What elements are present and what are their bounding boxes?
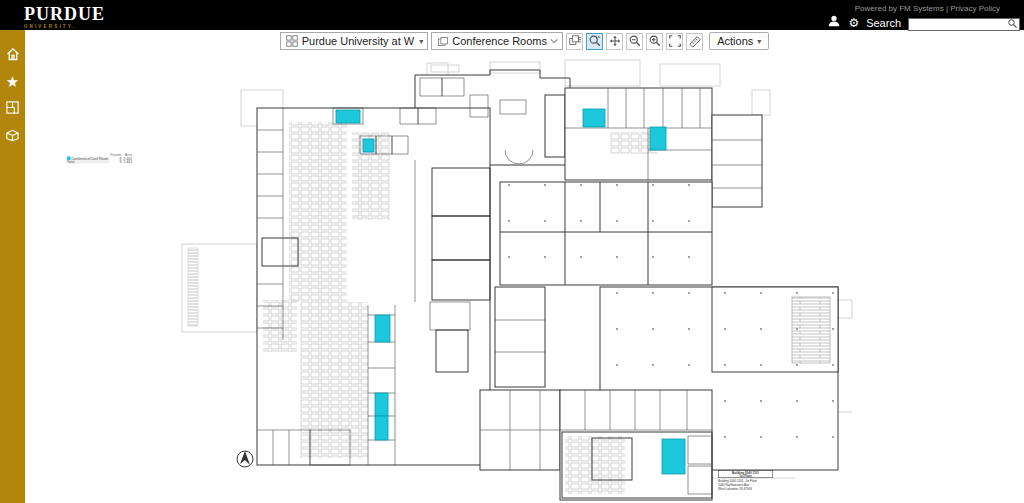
zoom-extents-button[interactable] — [666, 33, 683, 50]
left-sidebar: ★ — [0, 30, 25, 503]
pan-icon — [608, 34, 622, 48]
view-selector[interactable]: Conference Rooms — [431, 32, 563, 50]
view-selector-value: Conference Rooms — [452, 35, 547, 47]
top-bar: PURDUE UNIVERSITY. Powered by FM Systems… — [0, 0, 1024, 30]
campus-grid-icon — [285, 34, 299, 48]
conference-room-highlight-1[interactable] — [336, 110, 360, 123]
floorplan-icon — [5, 100, 20, 119]
conference-room-highlight-7[interactable] — [375, 416, 388, 440]
floorplan-drawing — [0, 0, 1024, 503]
chevron-down-icon — [550, 37, 558, 45]
upper-right-block — [565, 88, 712, 180]
gear-icon[interactable]: ⚙ — [848, 17, 859, 29]
conference-room-highlight-2[interactable] — [363, 139, 374, 152]
legend-row-total: Total 8 2,462 — [66, 160, 133, 164]
measure-icon — [688, 34, 702, 48]
middle-rooms-band — [500, 182, 712, 285]
sidebar-item-floorplans[interactable] — [0, 96, 25, 123]
conference-room-highlight-3[interactable] — [583, 109, 605, 127]
logo-text: PURDUE — [24, 4, 105, 25]
title-block: Building 5040 1101 1st Floor Building 50… — [718, 470, 773, 491]
rack-room — [712, 287, 838, 372]
star-icon: ★ — [6, 75, 19, 90]
site-selector-value: Purdue University at W — [302, 35, 414, 47]
legend: Rooms Area Conference/Conf Room 8 2,462 … — [66, 153, 133, 164]
actions-button[interactable]: Actions ▾ — [709, 32, 769, 50]
zoom-out-icon — [628, 34, 642, 48]
purdue-logo[interactable]: PURDUE UNIVERSITY. — [24, 4, 105, 29]
caret-down-icon: ▾ — [757, 37, 761, 46]
zoom-extents-icon — [668, 34, 682, 48]
measure-button[interactable] — [686, 33, 703, 50]
powered-by-links[interactable]: Powered by FM Systems | Privacy Policy — [855, 4, 1000, 13]
zoom-out-button[interactable] — [626, 33, 643, 50]
title-block-floor: 1st Floor — [720, 474, 772, 477]
search-label: Search — [866, 17, 901, 29]
pan-button[interactable] — [606, 33, 623, 50]
report-icon — [568, 34, 582, 48]
conference-room-highlight-6[interactable] — [375, 393, 388, 416]
search-input[interactable] — [908, 18, 1020, 31]
caret-down-icon: ▾ — [419, 37, 423, 46]
search-row: ⚙ Search — [827, 14, 1020, 32]
sidebar-item-home[interactable] — [0, 42, 25, 69]
zoom-window-button[interactable] — [586, 33, 603, 50]
site-selector[interactable]: Purdue University at W ▾ — [280, 32, 429, 50]
building-icon — [5, 127, 20, 146]
zoom-in-button[interactable] — [646, 33, 663, 50]
zoom-window-icon — [588, 34, 602, 48]
map-toolbar: Purdue University at W ▾ Conference Room… — [25, 30, 1024, 52]
sidebar-item-buildings[interactable] — [0, 123, 25, 150]
conference-room-highlight-5[interactable] — [375, 315, 390, 342]
home-icon — [5, 46, 21, 66]
zoom-in-icon — [648, 34, 662, 48]
floorplan-viewport[interactable]: Rooms Area Conference/Conf Room 8 2,462 … — [25, 52, 1024, 503]
left-office-block — [257, 108, 490, 465]
conference-room-highlight-4[interactable] — [650, 127, 666, 150]
north-arrow-icon — [237, 451, 253, 467]
fm-systems-app: Rooms Area Conference/Conf Room 8 2,462 … — [0, 0, 1024, 503]
layers-icon — [436, 35, 449, 48]
search-icon[interactable] — [1007, 15, 1018, 33]
far-right-wing — [712, 115, 762, 207]
mid-rooms — [480, 287, 560, 470]
sidebar-item-favorites[interactable]: ★ — [0, 69, 25, 96]
report-button[interactable] — [566, 33, 583, 50]
actions-label: Actions — [717, 35, 753, 47]
user-icon[interactable] — [827, 14, 841, 32]
conference-room-highlight-8[interactable] — [662, 439, 685, 474]
bottom-lab-block — [560, 390, 712, 500]
